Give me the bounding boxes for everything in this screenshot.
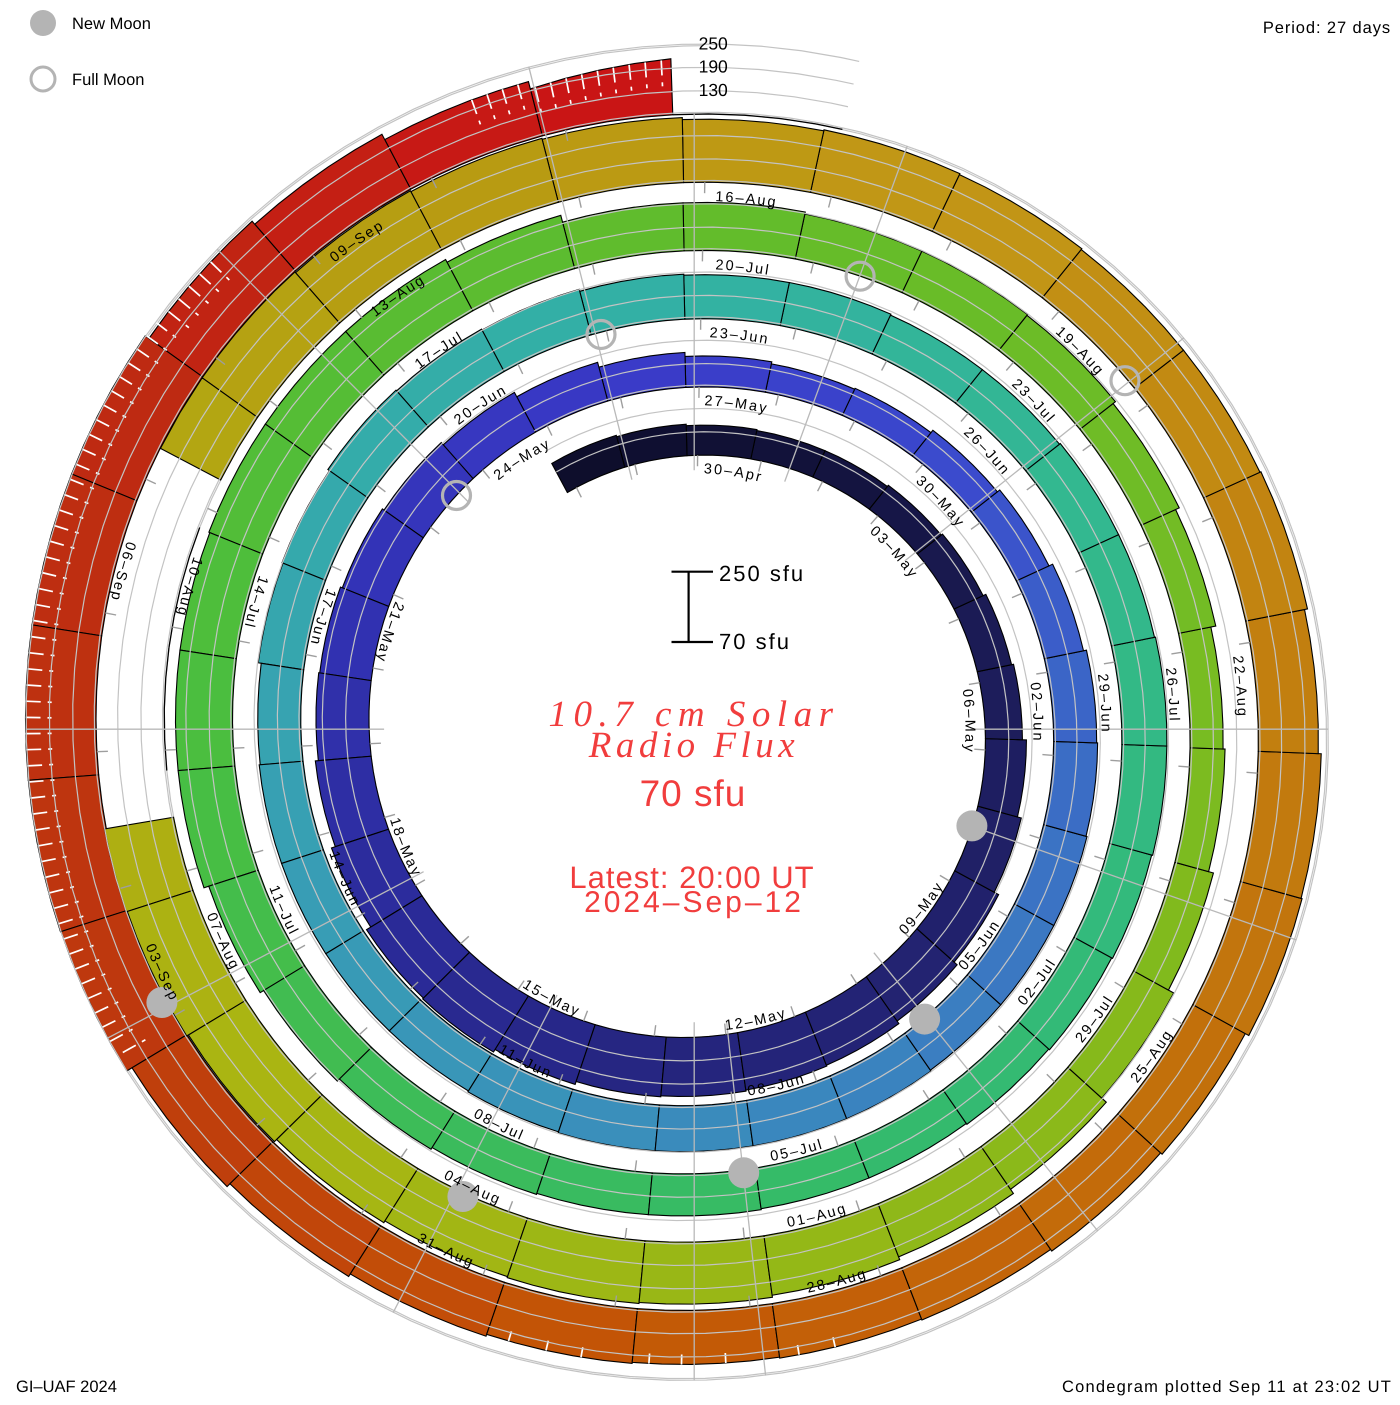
svg-text:Full Moon: Full Moon [72,71,144,89]
svg-text:70 sfu: 70 sfu [640,773,747,814]
svg-text:250 sfu: 250 sfu [719,561,805,586]
svg-text:Condegram plotted Sep 11 at 23: Condegram plotted Sep 11 at 23:02 UT [1062,1378,1392,1396]
svg-text:Radio Flux: Radio Flux [588,725,799,766]
svg-text:130: 130 [699,80,728,100]
svg-text:New Moon: New Moon [72,15,151,33]
svg-text:250: 250 [699,33,728,53]
svg-text:Period: 27 days: Period: 27 days [1263,19,1391,37]
svg-text:GI–UAF 2024: GI–UAF 2024 [16,1378,117,1396]
svg-text:2024–Sep–12: 2024–Sep–12 [584,886,804,919]
svg-text:70 sfu: 70 sfu [719,629,791,654]
svg-text:190: 190 [699,57,728,77]
